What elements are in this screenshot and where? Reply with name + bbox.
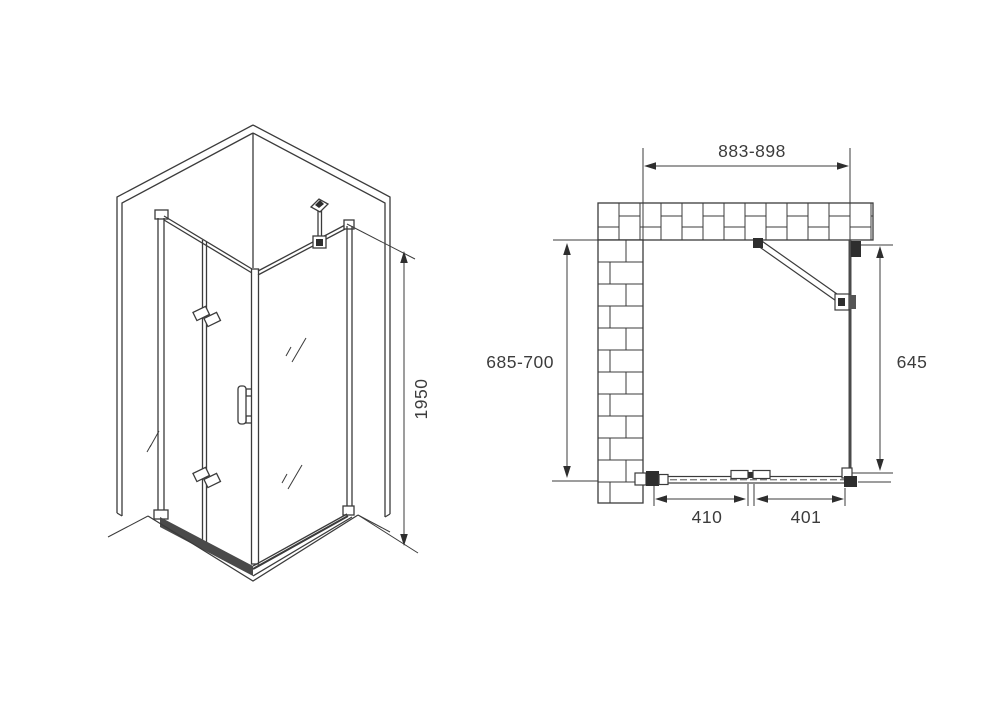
drawing-page: 1950 883-898 685-700 <box>0 0 1000 707</box>
side-wall-brick <box>598 240 643 503</box>
fold-hinge-icon <box>193 467 221 487</box>
support-bar-plan <box>753 238 856 310</box>
back-wall-brick <box>598 203 873 240</box>
bifold-door-track <box>635 468 857 487</box>
dim-door-panels: 410 401 <box>654 484 845 527</box>
dim-right-depth-label: 645 <box>897 352 928 372</box>
dim-door-left-label: 410 <box>692 507 723 527</box>
dim-height-label: 1950 <box>411 379 431 420</box>
fold-hinge-icon <box>193 306 221 326</box>
hinge-plate-icon <box>731 471 748 479</box>
dim-left-depth: 685-700 <box>486 240 598 481</box>
glass-shine-icon <box>282 338 306 489</box>
dim-door-right-label: 401 <box>791 507 822 527</box>
hinge-plate-icon <box>753 471 770 479</box>
fixed-panel <box>258 199 354 515</box>
wall-clamp-icon <box>851 241 861 257</box>
corner-post <box>252 269 259 564</box>
technical-drawing-canvas: 1950 883-898 685-700 <box>0 0 1000 707</box>
support-bar <box>311 199 328 248</box>
wall-shine-icon <box>147 431 159 452</box>
fixed-panel-plan <box>753 238 861 478</box>
plan-view: 883-898 685-700 645 <box>486 141 927 527</box>
perspective-view: 1950 <box>108 125 431 581</box>
dim-top-width-label: 883-898 <box>718 141 786 161</box>
dim-left-depth-label: 685-700 <box>486 352 554 372</box>
corner-walls <box>108 125 390 537</box>
bifold-door <box>154 210 255 543</box>
corner-bracket-icon <box>842 468 857 487</box>
dim-height: 1950 <box>347 224 431 553</box>
wall-hinge-bracket-icon <box>635 471 668 486</box>
dim-right-depth: 645 <box>852 245 927 482</box>
